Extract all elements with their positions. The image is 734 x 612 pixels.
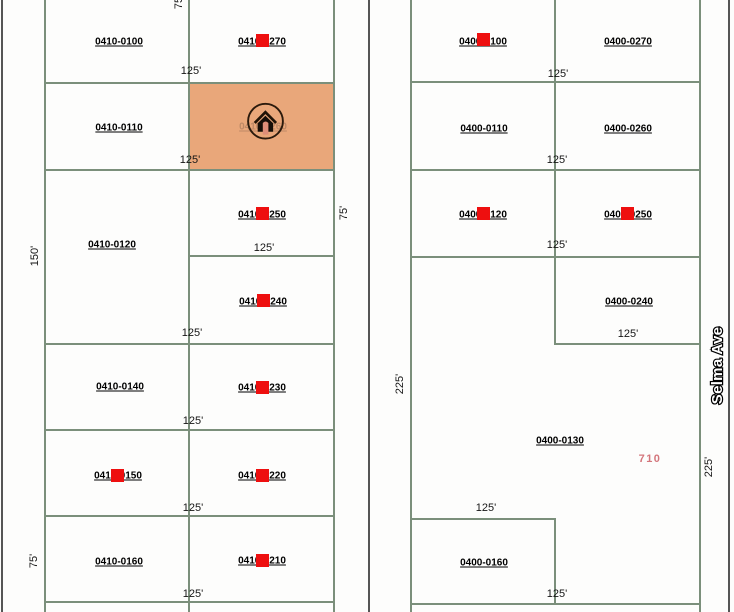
svg-text:Selma Ave: Selma Ave — [709, 327, 726, 404]
